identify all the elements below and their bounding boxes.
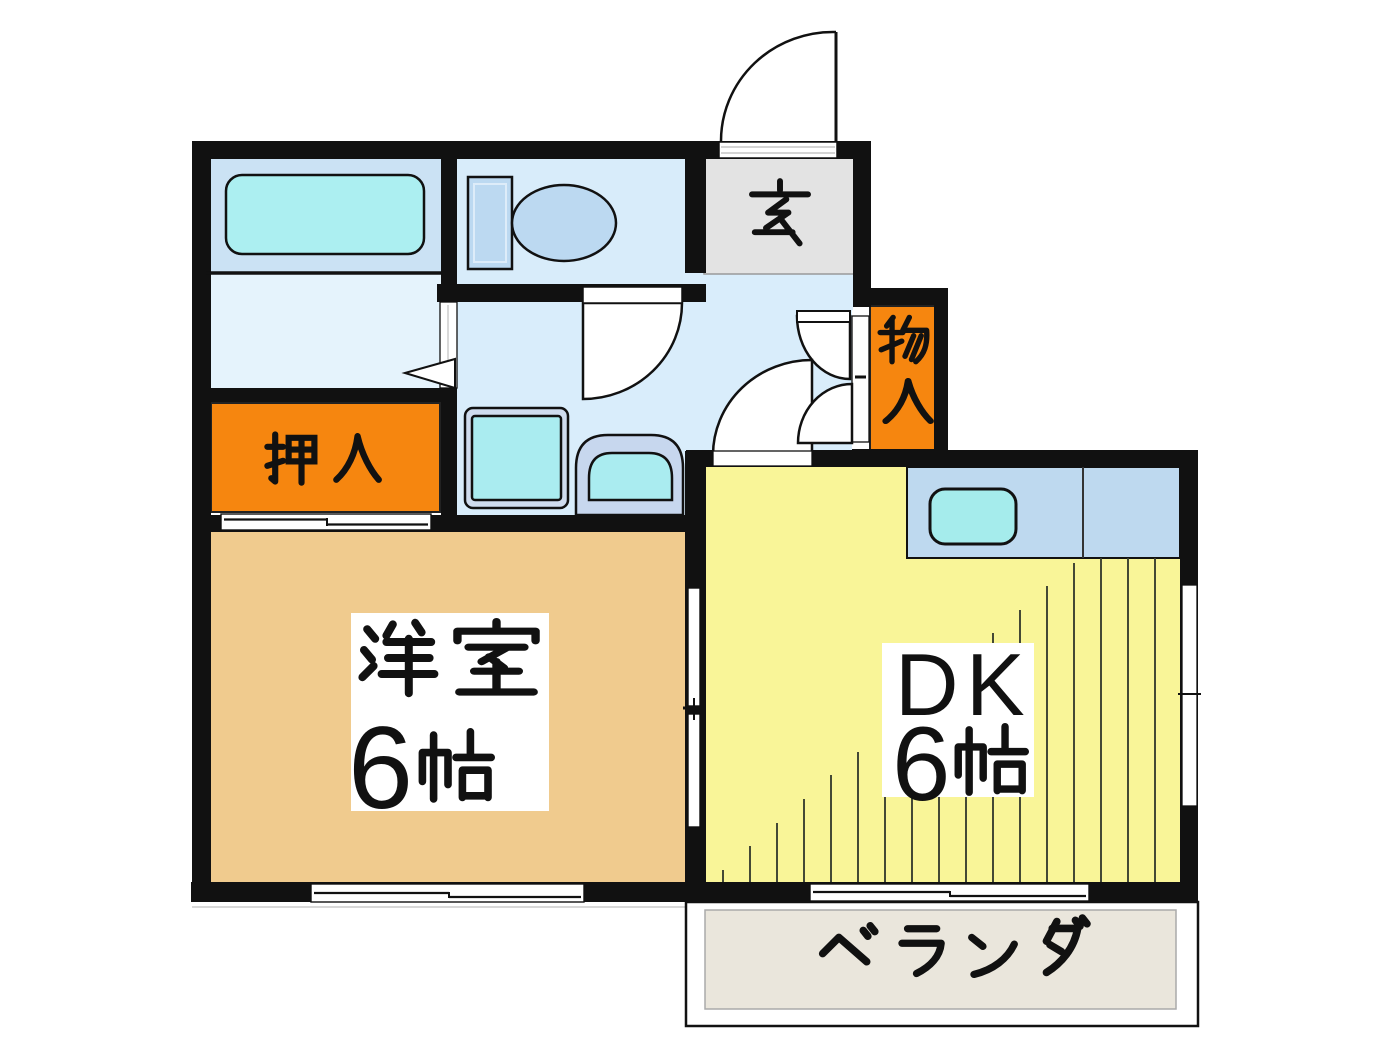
svg-text:6: 6	[348, 702, 413, 833]
svg-text:K: K	[966, 635, 1025, 734]
svg-text:6: 6	[892, 706, 950, 823]
